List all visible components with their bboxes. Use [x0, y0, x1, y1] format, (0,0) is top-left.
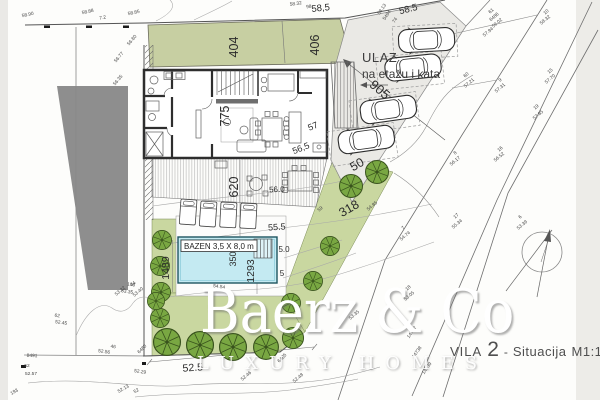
- spot-height-label: 56.80: [126, 34, 139, 47]
- spot-height-label: 52: [133, 387, 141, 395]
- survey-marker: [44, 26, 50, 29]
- spot-height-label: 60: [462, 71, 470, 79]
- spot-height-label: 56.77: [113, 51, 126, 64]
- car-icon: [398, 25, 455, 54]
- pool-label: BAZEN 3,5 X 8,0 m: [184, 242, 254, 251]
- sun-lounger-icon: [179, 199, 197, 225]
- title-number: 2: [487, 338, 499, 362]
- spot-height-label: 54.74: [399, 230, 412, 243]
- watermark-brand: Baerz & Co: [200, 282, 514, 342]
- spot-height-label: 8491: [27, 353, 38, 360]
- title-project: VILA: [450, 344, 482, 359]
- spot-height-label: 16: [496, 145, 504, 153]
- spot-height-label: 46: [110, 344, 116, 351]
- spot-height-label: 53.39: [516, 219, 529, 232]
- spot-height-label: 55.34: [451, 218, 464, 231]
- dimension-label: 58,5: [311, 2, 331, 15]
- spot-height-label: 52.57: [25, 371, 37, 377]
- site-plan-page: BAZEN 3,5 X 8,0 m: [0, 0, 600, 400]
- spot-height-label: 52.56: [98, 348, 111, 356]
- spot-height-label: 52.29: [134, 368, 147, 376]
- wall-bar: [216, 99, 258, 104]
- dimension-label: 5.0: [278, 245, 290, 254]
- spot-height-label: 58.88: [81, 8, 94, 16]
- spot-height-label: 62: [54, 313, 60, 320]
- sun-lounger-icon: [240, 203, 257, 229]
- title-scale: M1:120: [572, 344, 600, 359]
- dimension-label: 775: [218, 106, 232, 127]
- spot-height-label: 52.13: [117, 383, 131, 394]
- tree-icon: [147, 292, 164, 309]
- title-dash: -: [504, 345, 508, 359]
- dimension-label: 1489: [160, 256, 172, 280]
- dimension-label: 55.5: [268, 221, 286, 232]
- survey-marker: [86, 26, 92, 29]
- spot-height-label: 58.32: [289, 0, 302, 8]
- spot-height-label: 10: [542, 8, 550, 16]
- spot-height-label: 7.2: [99, 14, 107, 21]
- survey-marker: [142, 362, 146, 365]
- sun-lounger-icon: [220, 202, 237, 228]
- spot-height-label: 193: [10, 387, 20, 396]
- tree-icon: [320, 236, 339, 255]
- tree-icon: [340, 175, 363, 198]
- dimension-label: 406: [308, 35, 322, 56]
- tree-icon: [152, 230, 171, 249]
- left-margin: [0, 0, 8, 400]
- dimension-label: 56.0: [269, 185, 286, 195]
- spot-height-label: 19: [532, 103, 540, 111]
- title-name: Situacija: [513, 344, 567, 359]
- survey-marker: [123, 26, 129, 29]
- tree-icon: [150, 308, 169, 327]
- spot-height-label: 57.85: [532, 109, 545, 122]
- spot-height-label: 6480: [136, 343, 148, 355]
- watermark-tagline: LUXURY HOMES: [197, 353, 488, 374]
- dimension-label: 620: [227, 177, 241, 198]
- tree-icon: [154, 329, 181, 356]
- dimension-label: 404: [227, 37, 241, 58]
- spot-height-label: 56.35: [112, 74, 125, 87]
- spot-height-label: 52: [24, 363, 30, 369]
- spot-height-label: 58.90: [21, 11, 34, 19]
- dimension-label: 350: [228, 251, 238, 266]
- spot-height-label: 52.45: [55, 319, 68, 327]
- entrance-label-line1: ULAZ: [362, 50, 397, 65]
- neighbor-building: [57, 86, 128, 290]
- sun-lounger-icon: [199, 201, 217, 227]
- tree-icon: [366, 161, 389, 184]
- spot-height-label: 8: [452, 150, 458, 157]
- north-arrow-icon: [506, 229, 562, 297]
- exterior-stairs-icon: [331, 62, 358, 128]
- plan-title: VILA 2 - Situacija M1:120: [450, 338, 598, 362]
- spot-height-label: 58.85: [127, 9, 140, 17]
- spot-height-label: 6: [517, 214, 523, 221]
